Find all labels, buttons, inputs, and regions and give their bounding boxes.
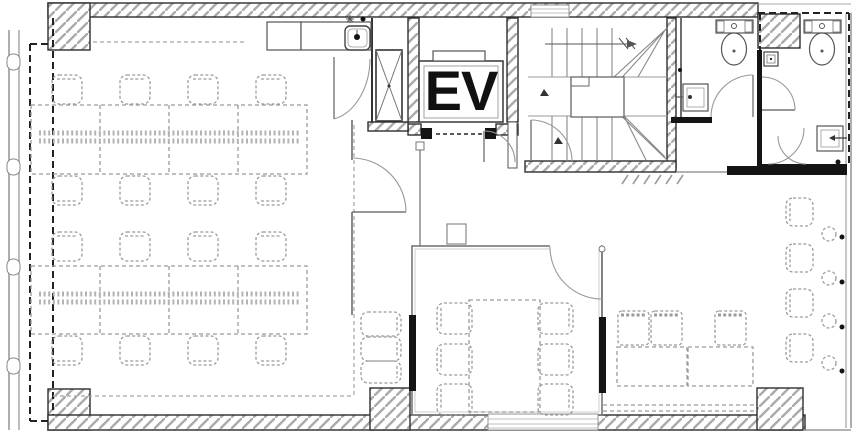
stacked-chair	[361, 312, 401, 336]
office-chair-outline	[120, 75, 150, 104]
office-chair	[256, 232, 286, 261]
kitchen-faucet-dot	[354, 34, 360, 40]
office-chair-outline	[188, 176, 218, 205]
toilet-bowl	[722, 33, 747, 65]
wall-corner-br	[757, 388, 803, 430]
stair-wall-right	[667, 18, 676, 168]
office-chair-outline	[120, 176, 150, 205]
floor-drain	[764, 52, 778, 66]
meeting-chair-outline	[538, 384, 573, 415]
lounge-chair	[786, 289, 813, 317]
toilet-tank	[804, 20, 841, 33]
office-chair-outline	[188, 336, 218, 365]
wall-office-se-block	[370, 388, 410, 430]
elevator-label: EV	[425, 59, 498, 122]
lounge-chair-outline	[786, 244, 813, 272]
ev-shaft-wall-left	[408, 18, 419, 122]
pipe-shaft	[376, 50, 402, 121]
stacked-chair-outline	[361, 337, 401, 361]
stair-treads-top	[552, 28, 612, 77]
office-chair	[188, 176, 218, 205]
office-chair	[256, 75, 286, 104]
meeting-chair-outline	[437, 344, 472, 375]
office-chair	[188, 336, 218, 365]
stairwell	[528, 28, 667, 161]
stair-wall-bottom	[525, 161, 676, 172]
mullion	[7, 54, 20, 70]
meeting-chair-outline	[437, 303, 472, 334]
wall-dot	[840, 280, 845, 285]
mullion	[7, 358, 20, 374]
lounge-stool	[822, 227, 836, 241]
lounge-table	[617, 347, 687, 386]
lounge-chair-outline	[786, 289, 813, 317]
office-chair-outline	[188, 232, 218, 261]
wall-corner-tl	[48, 3, 90, 50]
toilet-tank	[716, 20, 753, 33]
hatch-ticks	[622, 175, 683, 184]
wc-mid-block	[758, 14, 800, 48]
office-chair	[120, 75, 150, 104]
wc-right-sink	[817, 126, 847, 151]
stacked-chair-outline	[361, 312, 401, 336]
kitchen-tap-dot	[361, 17, 366, 22]
door-stop-dot	[678, 68, 682, 72]
office-chair-outline	[256, 75, 286, 104]
office-chair-outline	[120, 336, 150, 365]
office-chair	[52, 336, 82, 365]
meeting-east-black-wall	[599, 317, 606, 393]
stair-treads-bottom	[552, 116, 612, 161]
meeting-door-opening	[550, 242, 601, 251]
lounge-stool	[822, 356, 836, 370]
lounge-sofa	[618, 311, 649, 345]
toilet-bowl	[810, 33, 835, 65]
hall-floor-box	[447, 224, 466, 244]
pipe-shaft-dot	[388, 85, 391, 88]
office-chair-outline	[52, 75, 82, 104]
wc-left-door-arc	[711, 75, 753, 117]
toilet-drain-dot	[821, 50, 824, 53]
office-chair	[52, 232, 82, 261]
floor-plan: EV	[0, 0, 858, 433]
floor-plan-drawing: EV	[0, 0, 858, 433]
office-chair	[256, 176, 286, 205]
office-chair	[188, 232, 218, 261]
kitchen-tap-star-icon	[346, 15, 354, 23]
wc-right-toilet	[804, 20, 841, 65]
meeting-door-arc	[550, 247, 602, 299]
furniture-layer	[31, 75, 845, 415]
wall-dot	[840, 369, 845, 374]
lounge-chair-outline	[786, 198, 813, 226]
lounge-sofa	[715, 311, 746, 345]
wc-left-bottom-wall	[671, 117, 712, 123]
sink-faucet-dot	[688, 95, 692, 99]
office-chair	[52, 75, 82, 104]
lounge-top-black-wall	[727, 166, 847, 175]
hall-wall-cap	[416, 142, 424, 150]
office-chair	[120, 176, 150, 205]
ev-door-jamb-left	[421, 128, 432, 139]
ev-sill-left	[408, 124, 421, 135]
kitchenette	[267, 15, 371, 50]
office-chair-outline	[256, 336, 286, 365]
meeting-chair	[437, 384, 472, 415]
wc-left-toilet	[716, 20, 753, 65]
office-chair-outline	[120, 232, 150, 261]
office-chair	[120, 232, 150, 261]
door-stop-dot	[836, 160, 841, 165]
meeting-door-hinge-post	[599, 246, 605, 252]
kitchen-door-arc	[334, 59, 370, 119]
meeting-chair	[538, 384, 573, 415]
office-chair-outline	[52, 176, 82, 205]
meeting-chair	[437, 344, 472, 375]
office-chair-outline	[188, 75, 218, 104]
pipe-shaft-sill	[368, 122, 408, 131]
lounge-chair	[786, 334, 813, 362]
stair-landing	[571, 77, 624, 117]
stacked-chair	[361, 361, 401, 383]
meeting-chair	[437, 303, 472, 334]
meeting-chair-outline	[538, 344, 573, 375]
office-hall-door-arc	[352, 158, 406, 212]
stair-mark	[540, 89, 549, 96]
wall-bottom-band	[48, 415, 805, 430]
meeting-table	[469, 300, 540, 412]
lounge-chair	[786, 198, 813, 226]
meeting-chair-outline	[437, 384, 472, 415]
stacked-chair-outline	[361, 361, 401, 383]
office-chair-outline	[256, 232, 286, 261]
meeting-chair	[538, 303, 573, 334]
wall-top-band	[48, 3, 758, 17]
mullion	[7, 259, 20, 275]
stair-top-window	[531, 5, 569, 17]
toilet-drain-dot	[733, 50, 736, 53]
office-chair-outline	[52, 336, 82, 365]
stair-mark	[554, 137, 563, 144]
wall-dot	[840, 325, 845, 330]
meeting-west-black-wall	[409, 315, 416, 391]
elevator: EV	[419, 51, 503, 122]
office-chair	[256, 336, 286, 365]
office-chair	[120, 336, 150, 365]
office-chair	[52, 176, 82, 205]
interior-dashed-lines	[53, 42, 354, 396]
wc-right-bifold-arc	[768, 128, 804, 164]
office-chair	[188, 75, 218, 104]
lounge-stool	[822, 271, 836, 285]
lounge-stool	[822, 314, 836, 328]
floor-drain-dot	[770, 58, 772, 60]
lounge-chair-outline	[786, 334, 813, 362]
doors	[334, 57, 806, 299]
lounge-chair	[786, 244, 813, 272]
stacked-chair	[361, 337, 401, 361]
wall-dot	[840, 235, 845, 240]
office-chair-outline	[256, 176, 286, 205]
wc-right-door-arc	[762, 77, 795, 110]
lounge-sofa	[651, 311, 682, 345]
ev-shaft-wall-right	[507, 18, 518, 122]
meeting-chair	[538, 344, 573, 375]
mullion	[7, 159, 20, 175]
meeting-chair-outline	[538, 303, 573, 334]
wc-divider-wall	[757, 50, 762, 168]
office-chair-outline	[52, 232, 82, 261]
ev-door-jamb-right	[485, 128, 496, 139]
lounge-table	[688, 347, 753, 386]
counter-left	[267, 22, 301, 50]
property-line-left	[30, 44, 48, 421]
